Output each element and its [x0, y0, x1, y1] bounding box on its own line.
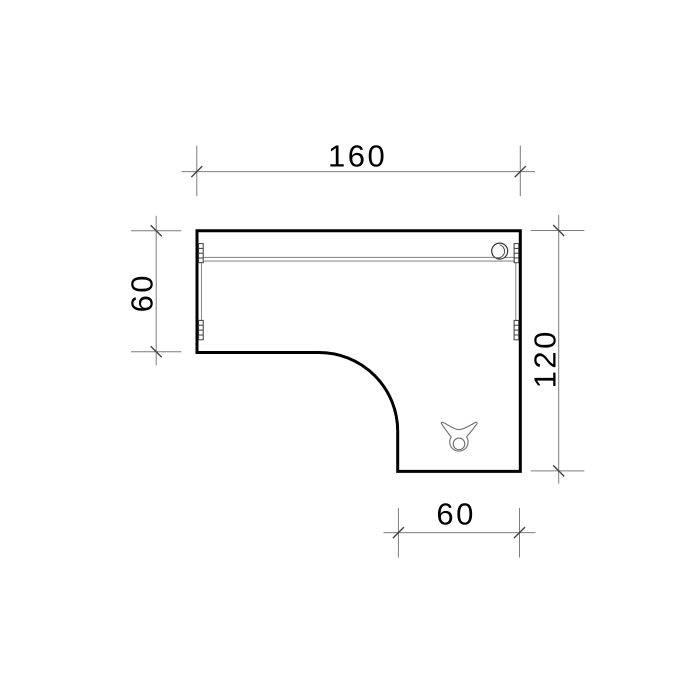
svg-text:60: 60	[436, 497, 475, 532]
svg-text:160: 160	[328, 138, 387, 173]
svg-text:60: 60	[124, 273, 159, 312]
svg-text:120: 120	[528, 329, 563, 388]
